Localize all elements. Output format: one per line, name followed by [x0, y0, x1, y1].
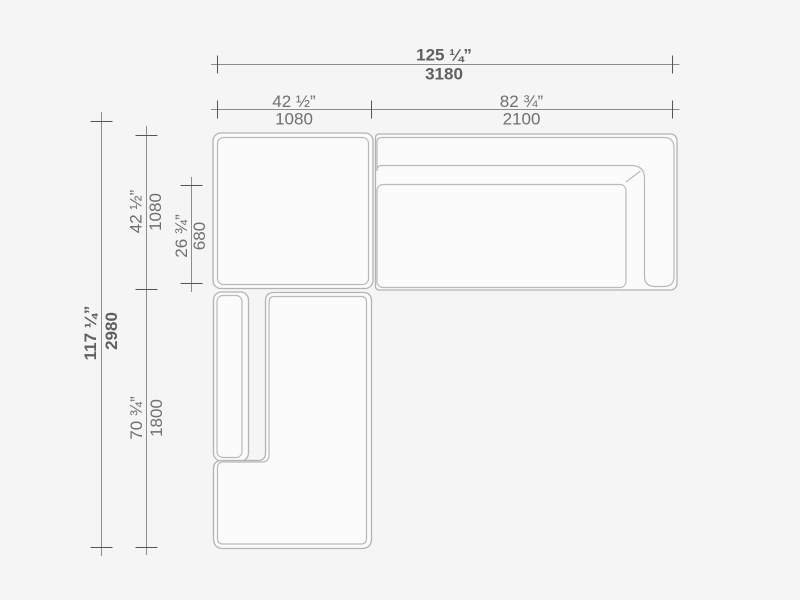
svg-text:26 ¾”: 26 ¾”: [172, 214, 191, 258]
svg-text:70 ¾”: 70 ¾”: [127, 396, 146, 440]
svg-text:1080: 1080: [275, 110, 313, 129]
svg-text:680: 680: [190, 222, 209, 250]
svg-text:3180: 3180: [425, 65, 463, 84]
svg-text:2980: 2980: [102, 312, 121, 350]
svg-text:125 ¼”: 125 ¼”: [416, 46, 472, 65]
svg-text:42 ½”: 42 ½”: [272, 92, 316, 111]
svg-text:2100: 2100: [503, 110, 541, 129]
svg-text:117 ¼”: 117 ¼”: [81, 306, 100, 361]
svg-text:1080: 1080: [146, 193, 165, 231]
svg-text:82 ¾”: 82 ¾”: [500, 92, 544, 111]
svg-text:42 ½”: 42 ½”: [127, 189, 146, 233]
svg-text:1800: 1800: [147, 399, 166, 437]
